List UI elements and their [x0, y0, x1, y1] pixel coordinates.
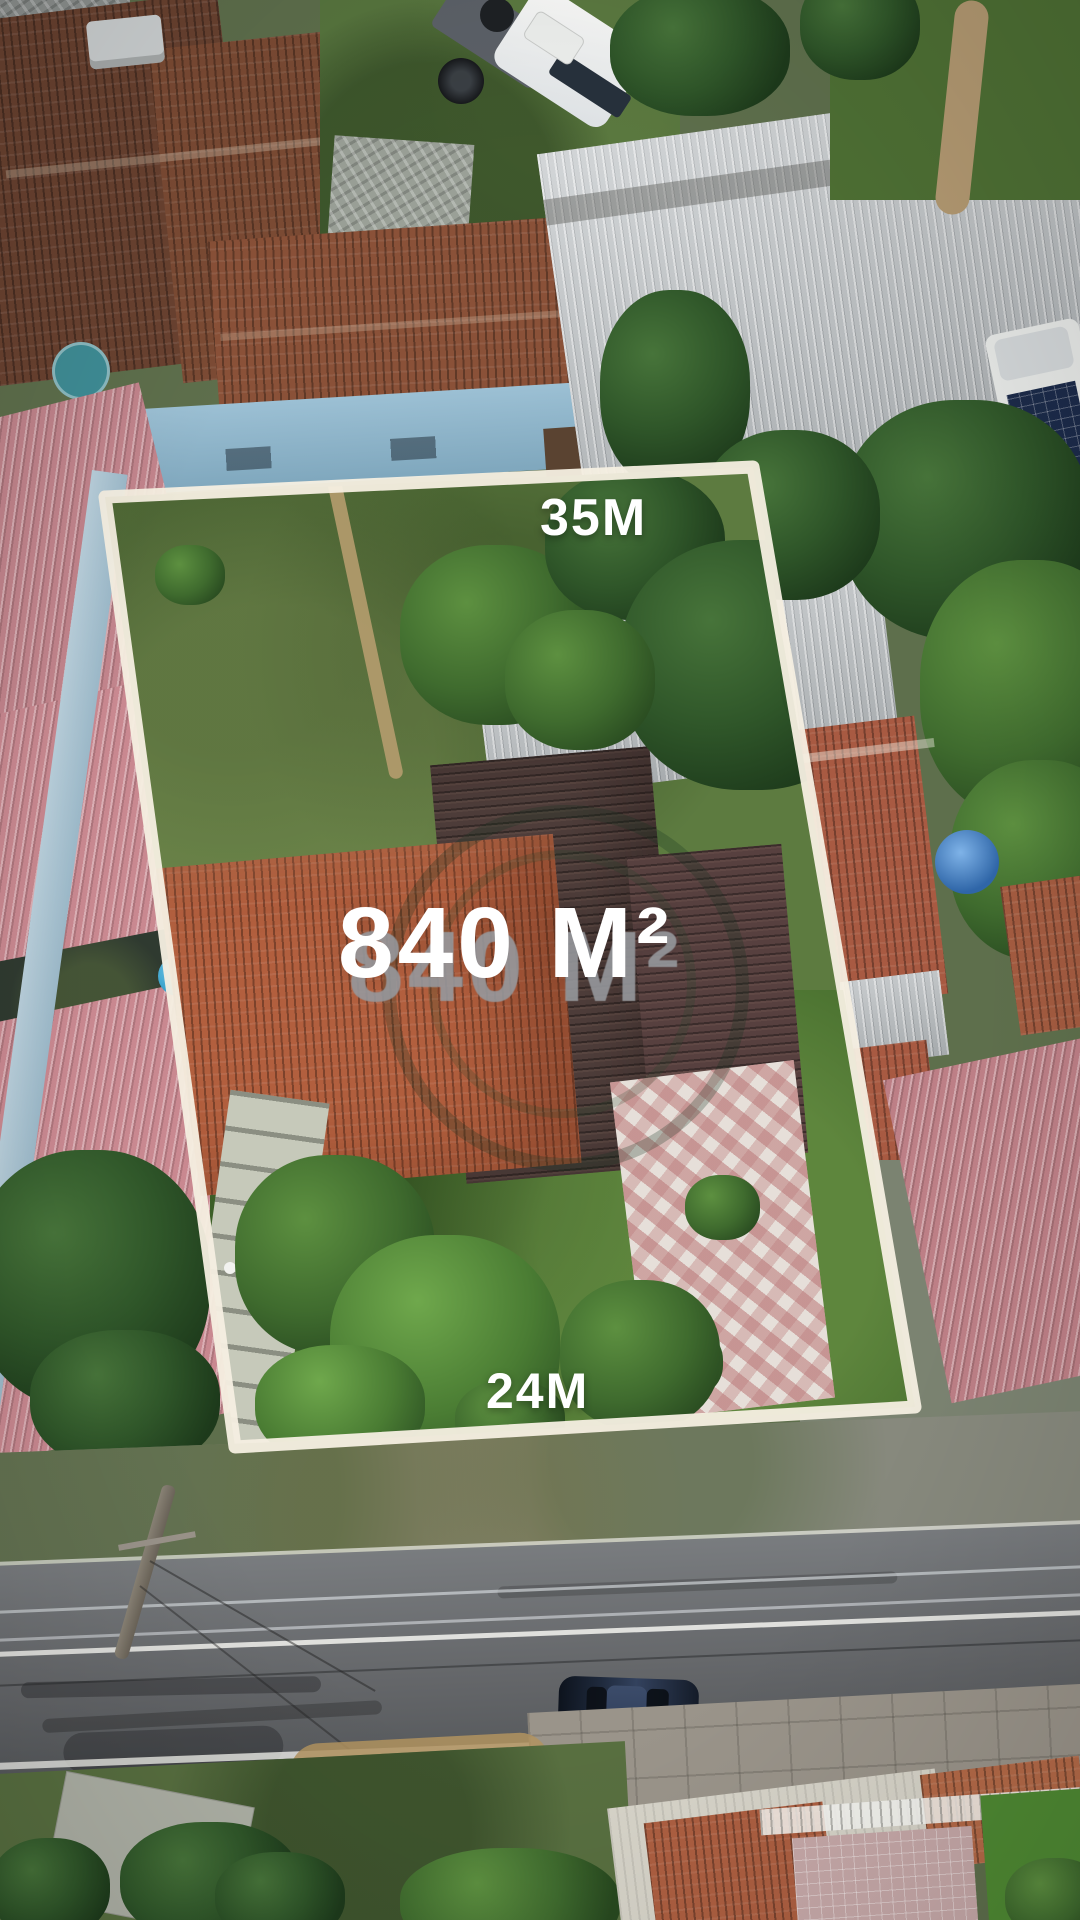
bottom-side-length-label: 24M	[486, 1366, 589, 1416]
area-label: 840 M²	[338, 893, 673, 993]
top-side-length-label: 35M	[540, 492, 647, 544]
aerial-property-photo: 35M 840 M² 24M	[0, 0, 1080, 1920]
